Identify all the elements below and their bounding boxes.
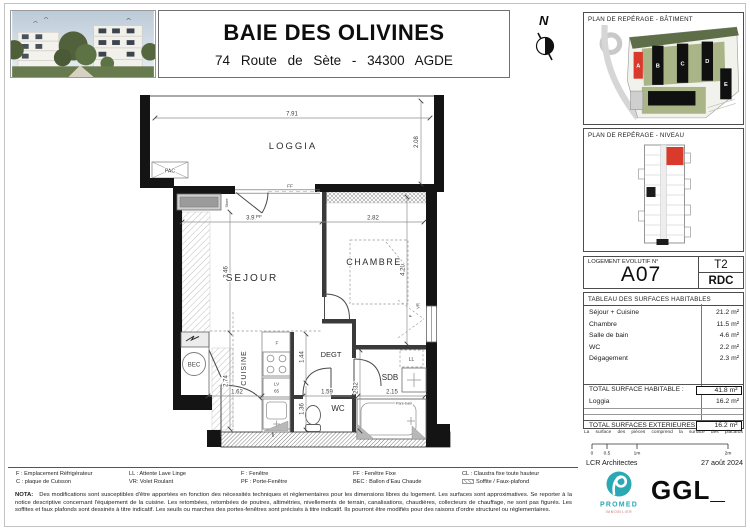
svg-text:1m: 1m: [634, 451, 641, 456]
vr-label: VR: [416, 303, 421, 309]
north-letter: N: [539, 13, 549, 28]
room-label-degt: DEGT: [321, 350, 342, 359]
washbasin: [402, 368, 426, 392]
dim-loggia-depth: 2.08: [414, 136, 420, 148]
room-label-wc: WC: [331, 404, 345, 413]
legend-col: CL : Claustra fixe toute hauteur Soffite…: [462, 471, 539, 486]
project-address: 74 Route de Sète - 34300 AGDE: [159, 53, 509, 68]
loggia-area: PAC: [140, 96, 444, 178]
project-title: BAIE DES OLIVINES: [159, 20, 509, 46]
promed-subtext: IMMOBILIER: [606, 510, 633, 514]
dim-degt-width: 1.59: [321, 390, 333, 396]
total-habitable-row: TOTAL SURFACE HABITABLE : 41.8 m²: [584, 386, 743, 398]
sdb-door: [354, 359, 381, 386]
dim-sdb-width: 2.15: [386, 390, 398, 396]
store-box: Store: [177, 194, 229, 210]
window-label: F: [408, 314, 413, 317]
soffit-swatch: [462, 479, 474, 484]
north-compass: N: [522, 10, 568, 64]
stair-core: [647, 187, 656, 197]
room-label-sejour: SEJOUR: [226, 273, 279, 284]
surfaces-box: TABLEAU DES SURFACES HABITABLES Séjour +…: [583, 292, 744, 429]
building-south: [648, 91, 695, 105]
legend-rule: [8, 467, 578, 468]
surface-row: Salle de bain 4.6 m²: [584, 332, 743, 344]
bec-closet: BEC: [181, 332, 209, 395]
compass-half: [545, 38, 554, 55]
ggl-logo: GGL_: [651, 475, 726, 506]
niveau-box: PLAN DE REPÉRAGE - NIVEAU: [583, 128, 744, 252]
legend-col: F : Emplacement Réfrigérateur C : plaque…: [16, 471, 92, 486]
dim-loggia-width: 7.91: [286, 112, 298, 118]
bec-label: BEC: [188, 362, 201, 369]
highlighted-unit: [667, 147, 684, 165]
dim-chambre-width: 2.82: [367, 216, 379, 222]
building-photo: [10, 10, 156, 78]
svg-text:B: B: [656, 63, 660, 69]
surface-row: Chambre 11.5 m²: [584, 321, 743, 333]
nota-text: NOTA:Des modifications sont susceptibles…: [15, 492, 572, 515]
svg-text:D: D: [705, 59, 709, 65]
fridge-label: F: [276, 341, 279, 347]
svg-text:C: C: [681, 61, 685, 67]
unit-floor: RDC: [699, 273, 743, 287]
nota-heading: NOTA:: [15, 492, 33, 498]
unit-type: T2: [699, 257, 743, 273]
wc-toilet: [306, 406, 321, 432]
promed-logo: PROMED IMMOBILIER: [595, 470, 643, 522]
pf-label: PF: [256, 214, 262, 220]
dim-wc-depth: 1.36: [300, 403, 306, 415]
ll-label: LL: [409, 357, 415, 363]
lv-width-label: 65: [274, 389, 280, 394]
unit-number: A07: [584, 263, 698, 287]
existing-building: [631, 91, 643, 110]
legend-col: FF : Fenêtre Fixe BEC : Ballon d'Eau Cha…: [353, 471, 422, 486]
promed-text: PROMED: [600, 502, 638, 509]
legend-col: F : Fenêtre PF : Porte-Fenêtre: [241, 471, 287, 486]
surface-row: Dégagement 2.3 m²: [584, 355, 743, 367]
dim-degt-depth: 1.44: [300, 351, 306, 363]
plan-sheet: BAIE DES OLIVINES 74 Route de Sète - 343…: [0, 0, 750, 530]
scale-labels: 0 0.5 1m 2m: [591, 451, 732, 456]
pare-bain-label: Pare-bain: [396, 402, 412, 406]
dim-cuisine-depth: 2.74: [224, 375, 230, 387]
floor-plan: PAC: [0, 85, 580, 460]
niveau-title: PLAN DE REPÉRAGE - NIVEAU: [584, 129, 743, 139]
total-habitable-value: 41.8 m²: [696, 386, 742, 396]
site-map: A B C D E: [584, 23, 743, 122]
fixed-window-loggia: [235, 190, 320, 193]
svg-text:E: E: [724, 82, 728, 88]
svg-text:0.5: 0.5: [604, 451, 611, 456]
bathtub: Pare-bain: [357, 399, 426, 439]
batiment-box: PLAN DE REPÉRAGE - BÂTIMENT A B C D E: [583, 12, 744, 125]
electrical-panel: [181, 332, 209, 347]
chambre-door: [325, 294, 350, 319]
ff-label: FF: [287, 184, 293, 190]
surface-row: WC 2.2 m²: [584, 344, 743, 356]
surfaces-title: TABLEAU DES SURFACES HABITABLES: [584, 293, 743, 306]
pac-label: PAC: [165, 169, 176, 175]
dim-sdb-depth: 2.32: [354, 382, 360, 394]
legend: F : Emplacement Réfrigérateur C : plaque…: [8, 470, 578, 487]
batiment-title: PLAN DE REPÉRAGE - BÂTIMENT: [584, 13, 743, 23]
legend-col: LL : Attente Lave Linge VR: Volet Roulan…: [129, 471, 186, 486]
title-box: BAIE DES OLIVINES 74 Route de Sète - 343…: [158, 10, 510, 78]
level-map: [584, 139, 743, 247]
building-photo-art: [11, 11, 155, 77]
scale-bar: 0 0.5 1m 2m: [588, 439, 740, 455]
promed-circle: [607, 472, 632, 497]
placard-zone: [350, 240, 408, 304]
unit-box: LOGEMENT EVOLUTIF N° A07 T2 RDC: [583, 256, 744, 289]
loggia-door: [236, 193, 268, 214]
svg-text:2m: 2m: [725, 451, 732, 456]
room-label-cuisine: CUISINE: [241, 350, 248, 385]
svg-text:A: A: [636, 63, 640, 69]
surface-row: Séjour + Cuisine 21.2 m²: [584, 309, 743, 321]
svg-text:0: 0: [591, 451, 594, 456]
cooktop: [263, 352, 290, 376]
dim-cuisine-width: 1.62: [231, 390, 243, 396]
room-label-sdb: SDB: [382, 373, 398, 382]
pac-unit: PAC: [152, 162, 188, 178]
room-label-chambre: CHAMBRE: [346, 257, 402, 267]
kitchen-fixtures: LV 65: [262, 332, 290, 432]
store-label: Store: [225, 198, 229, 207]
dishwasher: LV 65: [263, 378, 290, 397]
plan-date: 27 août 2024: [701, 458, 743, 467]
architect: LCR Architectes: [586, 458, 638, 467]
surfaces-note: La surface des pièces comprend la surfac…: [583, 430, 744, 435]
room-label-loggia: LOGGIA: [269, 141, 317, 152]
